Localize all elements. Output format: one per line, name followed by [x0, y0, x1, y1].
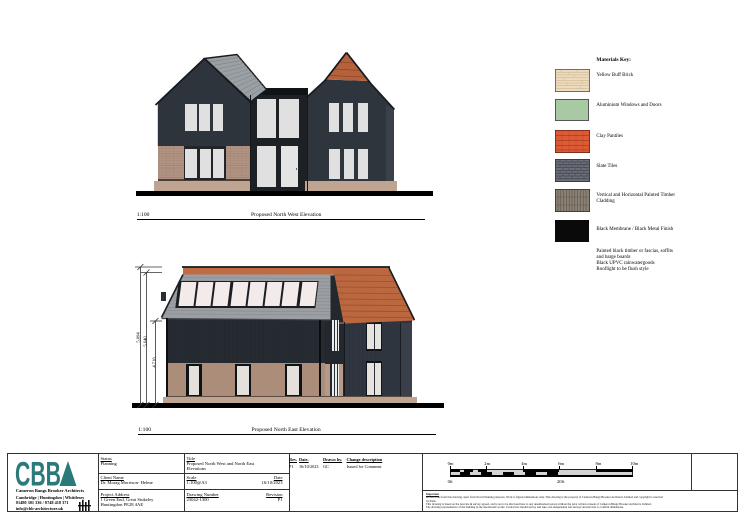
svg-text:CBB: CBB — [15, 460, 61, 487]
